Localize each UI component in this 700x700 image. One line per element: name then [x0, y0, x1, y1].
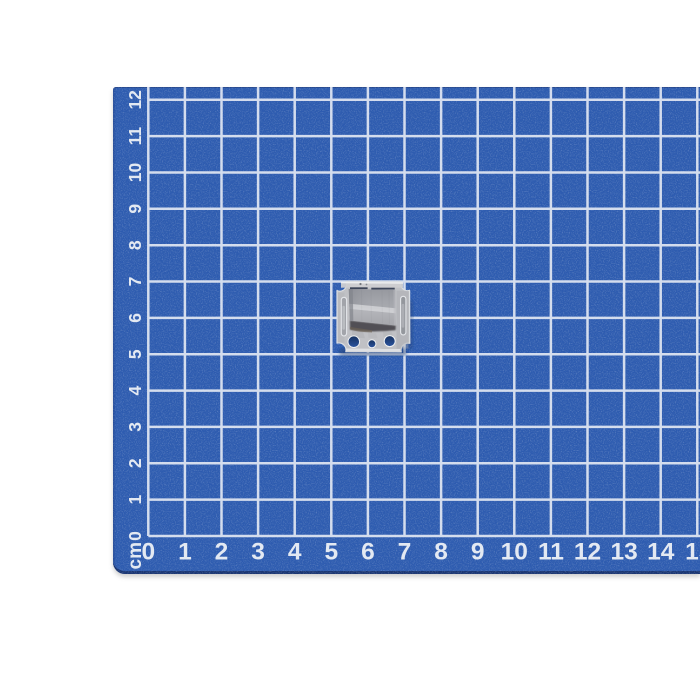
svg-text:2: 2 — [215, 539, 229, 566]
svg-text:1: 1 — [125, 495, 145, 505]
svg-text:5: 5 — [324, 539, 338, 566]
svg-text:0: 0 — [125, 531, 145, 541]
svg-text:9: 9 — [125, 204, 145, 214]
svg-text:13: 13 — [610, 539, 637, 566]
svg-text:14: 14 — [647, 539, 675, 566]
svg-text:8: 8 — [434, 539, 448, 566]
svg-text:6: 6 — [361, 539, 375, 566]
svg-text:12: 12 — [574, 539, 601, 566]
svg-text:5: 5 — [125, 349, 145, 359]
svg-text:2: 2 — [125, 458, 145, 468]
svg-text:6: 6 — [125, 313, 145, 323]
svg-text:3: 3 — [125, 422, 145, 432]
svg-text:11: 11 — [538, 539, 564, 566]
svg-text:8: 8 — [125, 240, 145, 250]
svg-text:9: 9 — [471, 539, 485, 566]
svg-text:7: 7 — [398, 539, 412, 566]
svg-text:4: 4 — [125, 386, 145, 396]
svg-text:15: 15 — [685, 539, 700, 566]
svg-text:4: 4 — [288, 539, 302, 566]
svg-text:7: 7 — [125, 277, 145, 287]
svg-text:3: 3 — [251, 539, 265, 566]
svg-text:10: 10 — [125, 163, 145, 183]
svg-text:11: 11 — [125, 127, 145, 146]
svg-text:cm: cm — [125, 542, 146, 569]
svg-text:12: 12 — [125, 90, 145, 110]
svg-text:1: 1 — [178, 539, 192, 566]
svg-text:10: 10 — [501, 539, 528, 566]
